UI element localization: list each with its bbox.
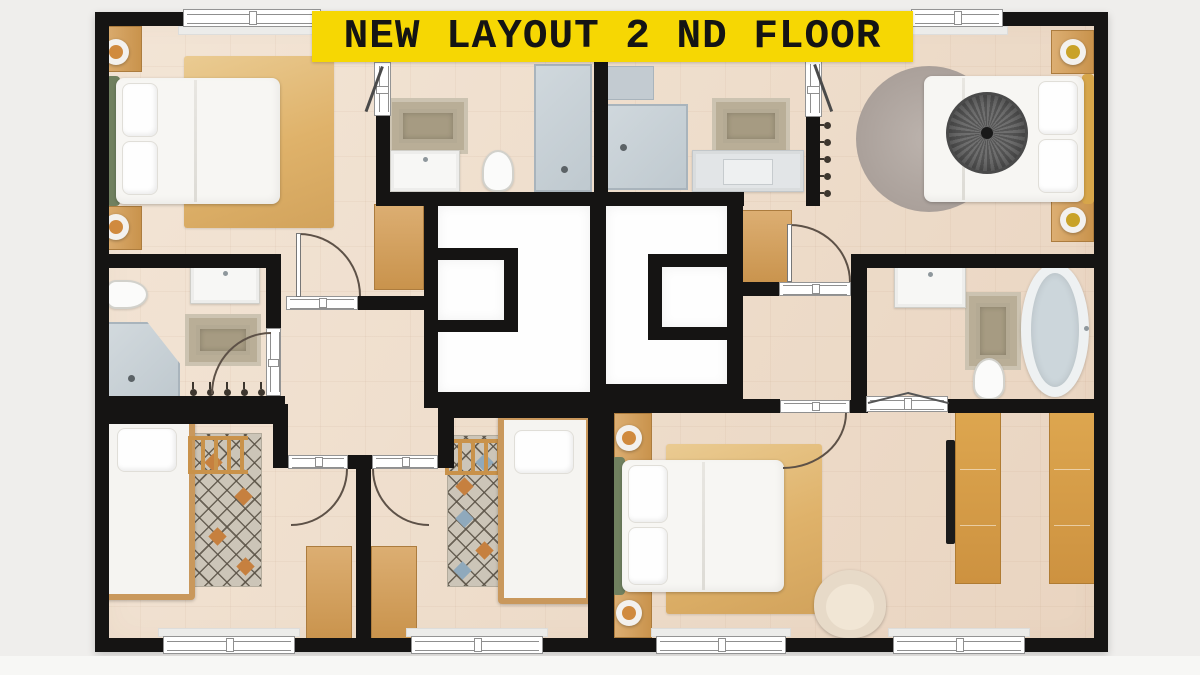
title-banner: NEW LAYOUT 2 ND FLOOR [312, 11, 913, 62]
window [163, 636, 295, 654]
door-leaf [787, 224, 792, 282]
window [183, 9, 321, 27]
door-swing-arc [783, 413, 847, 469]
window [656, 636, 786, 654]
door-bedroom-bottom-middle [372, 455, 438, 469]
door-swing-arc [372, 469, 429, 526]
door-bedroom-bottom-left [288, 455, 348, 469]
window [411, 636, 543, 654]
door-bedroom-top-left [286, 296, 358, 310]
door-swing-arc [790, 224, 851, 282]
door-swing-arc [291, 469, 348, 526]
openings-layer [0, 0, 1200, 675]
title-text: NEW LAYOUT 2 ND FLOOR [344, 14, 882, 60]
floor-plan-canvas: NEW LAYOUT 2 ND FLOOR [0, 0, 1200, 675]
window-sill [906, 26, 1008, 35]
door-swing-arc [211, 332, 271, 394]
door-bedroom-bottom-right [780, 400, 850, 413]
door-leaf [296, 233, 301, 297]
window [911, 9, 1003, 27]
window-sill [178, 26, 326, 35]
door-swing-arc [299, 233, 361, 296]
window [893, 636, 1025, 654]
door-bedroom-top-right [779, 282, 851, 296]
